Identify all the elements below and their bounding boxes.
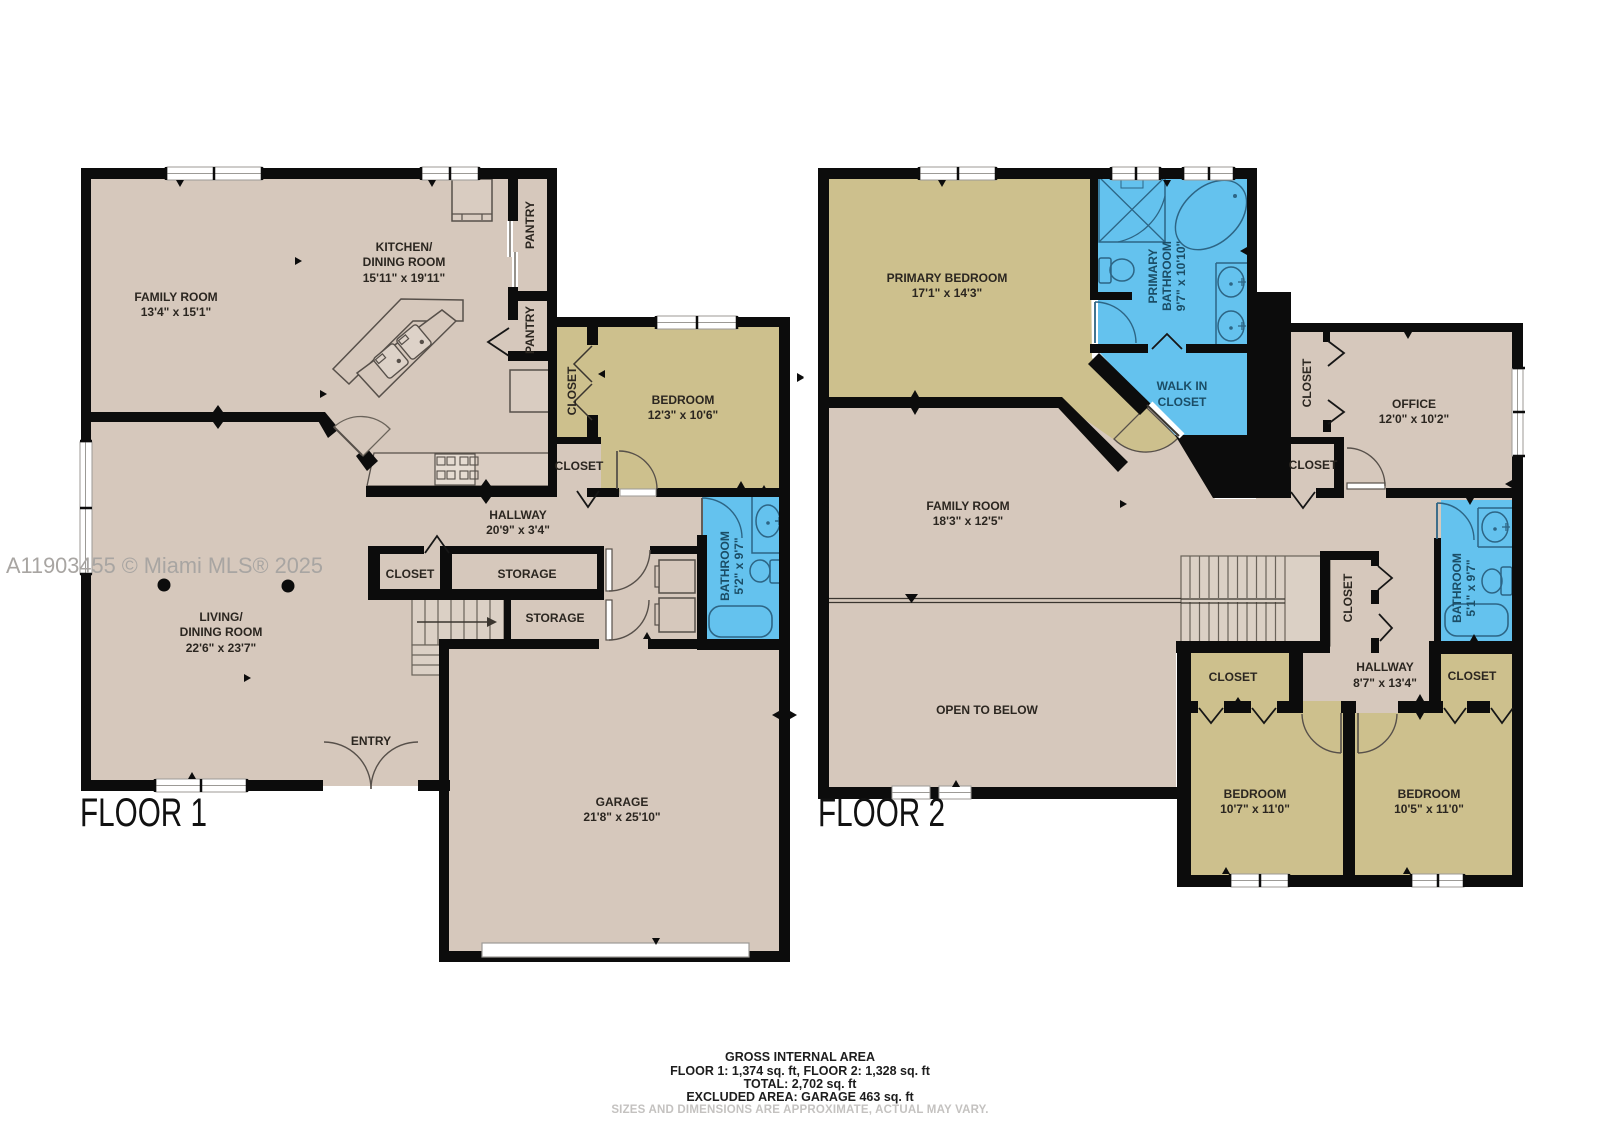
svg-text:SIZES AND DIMENSIONS ARE APPRO: SIZES AND DIMENSIONS ARE APPROXIMATE, AC… — [611, 1104, 988, 1116]
svg-text:HALLWAY: HALLWAY — [1356, 660, 1414, 674]
svg-text:PANTRY: PANTRY — [523, 306, 537, 354]
svg-text:CLOSET: CLOSET — [565, 366, 579, 415]
svg-text:10'5" x 11'0": 10'5" x 11'0" — [1394, 802, 1464, 816]
svg-text:A11903455 © Miami MLS® 2025: A11903455 © Miami MLS® 2025 — [6, 553, 323, 578]
svg-text:20'9" x 3'4": 20'9" x 3'4" — [486, 523, 550, 537]
svg-text:BEDROOM: BEDROOM — [652, 393, 715, 407]
svg-text:STORAGE: STORAGE — [525, 611, 584, 625]
svg-text:DINING ROOM: DINING ROOM — [363, 255, 446, 269]
svg-text:CLOSET: CLOSET — [1158, 395, 1207, 409]
svg-text:FLOOR 1: 1,374 sq. ft, FLOOR 2: FLOOR 1: 1,374 sq. ft, FLOOR 2: 1,328 sq… — [670, 1064, 931, 1078]
svg-text:12'3" x 10'6": 12'3" x 10'6" — [648, 408, 718, 422]
svg-text:EXCLUDED AREA: GARAGE 463 sq.: EXCLUDED AREA: GARAGE 463 sq. ft — [686, 1090, 914, 1104]
svg-text:FAMILY ROOM: FAMILY ROOM — [926, 499, 1009, 513]
svg-text:FAMILY ROOM: FAMILY ROOM — [134, 290, 217, 304]
svg-text:FLOOR 2: FLOOR 2 — [818, 791, 945, 835]
svg-text:15'11" x 19'11": 15'11" x 19'11" — [363, 271, 446, 285]
svg-text:17'1" x 14'3": 17'1" x 14'3" — [912, 286, 982, 300]
svg-text:9'7" x 10'10": 9'7" x 10'10" — [1174, 241, 1188, 311]
svg-text:OFFICE: OFFICE — [1392, 397, 1436, 411]
svg-text:CLOSET: CLOSET — [1448, 669, 1497, 683]
svg-text:5'2" x 9'7": 5'2" x 9'7" — [732, 537, 746, 594]
svg-text:DINING ROOM: DINING ROOM — [180, 625, 263, 639]
svg-text:FLOOR 1: FLOOR 1 — [80, 791, 207, 835]
svg-text:12'0" x 10'2": 12'0" x 10'2" — [1379, 412, 1449, 426]
svg-text:PRIMARY BEDROOM: PRIMARY BEDROOM — [887, 271, 1008, 285]
svg-text:WALK IN: WALK IN — [1157, 379, 1208, 393]
svg-text:PANTRY: PANTRY — [523, 201, 537, 249]
svg-text:GARAGE: GARAGE — [596, 795, 649, 809]
svg-text:22'6" x 23'7": 22'6" x 23'7" — [186, 641, 256, 655]
svg-text:21'8" x 25'10": 21'8" x 25'10" — [583, 810, 660, 824]
svg-text:BATHROOM: BATHROOM — [1450, 553, 1464, 623]
svg-text:CLOSET: CLOSET — [1341, 573, 1355, 622]
svg-text:STORAGE: STORAGE — [497, 567, 556, 581]
svg-text:13'4" x 15'1": 13'4" x 15'1" — [141, 305, 211, 319]
svg-text:BATHROOM: BATHROOM — [718, 531, 732, 601]
svg-text:CLOSET: CLOSET — [1300, 358, 1314, 407]
svg-text:BEDROOM: BEDROOM — [1398, 787, 1461, 801]
svg-text:5'1" x 9'7": 5'1" x 9'7" — [1464, 559, 1478, 616]
svg-text:8'7" x 13'4": 8'7" x 13'4" — [1353, 676, 1417, 690]
svg-text:CLOSET: CLOSET — [1289, 458, 1338, 472]
svg-text:OPEN TO BELOW: OPEN TO BELOW — [936, 703, 1038, 717]
svg-text:BATHROOM: BATHROOM — [1160, 241, 1174, 311]
svg-text:18'3" x 12'5": 18'3" x 12'5" — [933, 514, 1003, 528]
svg-text:LIVING/: LIVING/ — [199, 610, 243, 624]
svg-text:PRIMARY: PRIMARY — [1146, 249, 1160, 304]
svg-text:BEDROOM: BEDROOM — [1224, 787, 1287, 801]
svg-text:ENTRY: ENTRY — [351, 734, 391, 748]
svg-text:CLOSET: CLOSET — [386, 567, 435, 581]
svg-text:KITCHEN/: KITCHEN/ — [376, 240, 433, 254]
svg-text:CLOSET: CLOSET — [1209, 670, 1258, 684]
svg-text:HALLWAY: HALLWAY — [489, 508, 547, 522]
svg-text:TOTAL: 2,702 sq. ft: TOTAL: 2,702 sq. ft — [744, 1077, 858, 1091]
svg-text:CLOSET: CLOSET — [555, 459, 604, 473]
svg-text:10'7" x 11'0": 10'7" x 11'0" — [1220, 802, 1290, 816]
svg-text:GROSS INTERNAL AREA: GROSS INTERNAL AREA — [725, 1050, 875, 1064]
